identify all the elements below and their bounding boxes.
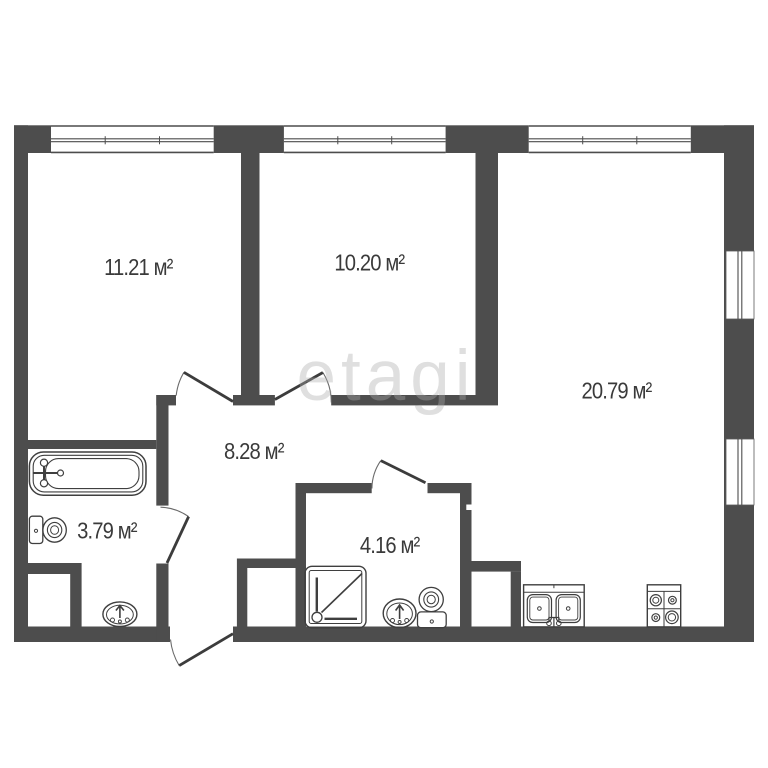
svg-text:3.79 м²: 3.79 м² [77, 517, 137, 544]
svg-text:10.20 м²: 10.20 м² [334, 249, 404, 276]
svg-text:20.79 м²: 20.79 м² [581, 377, 651, 404]
svg-text:4.16 м²: 4.16 м² [360, 532, 420, 559]
svg-text:8.28 м²: 8.28 м² [224, 438, 284, 465]
svg-text:11.21 м²: 11.21 м² [104, 254, 173, 281]
svg-text:etagi: etagi [297, 337, 476, 416]
